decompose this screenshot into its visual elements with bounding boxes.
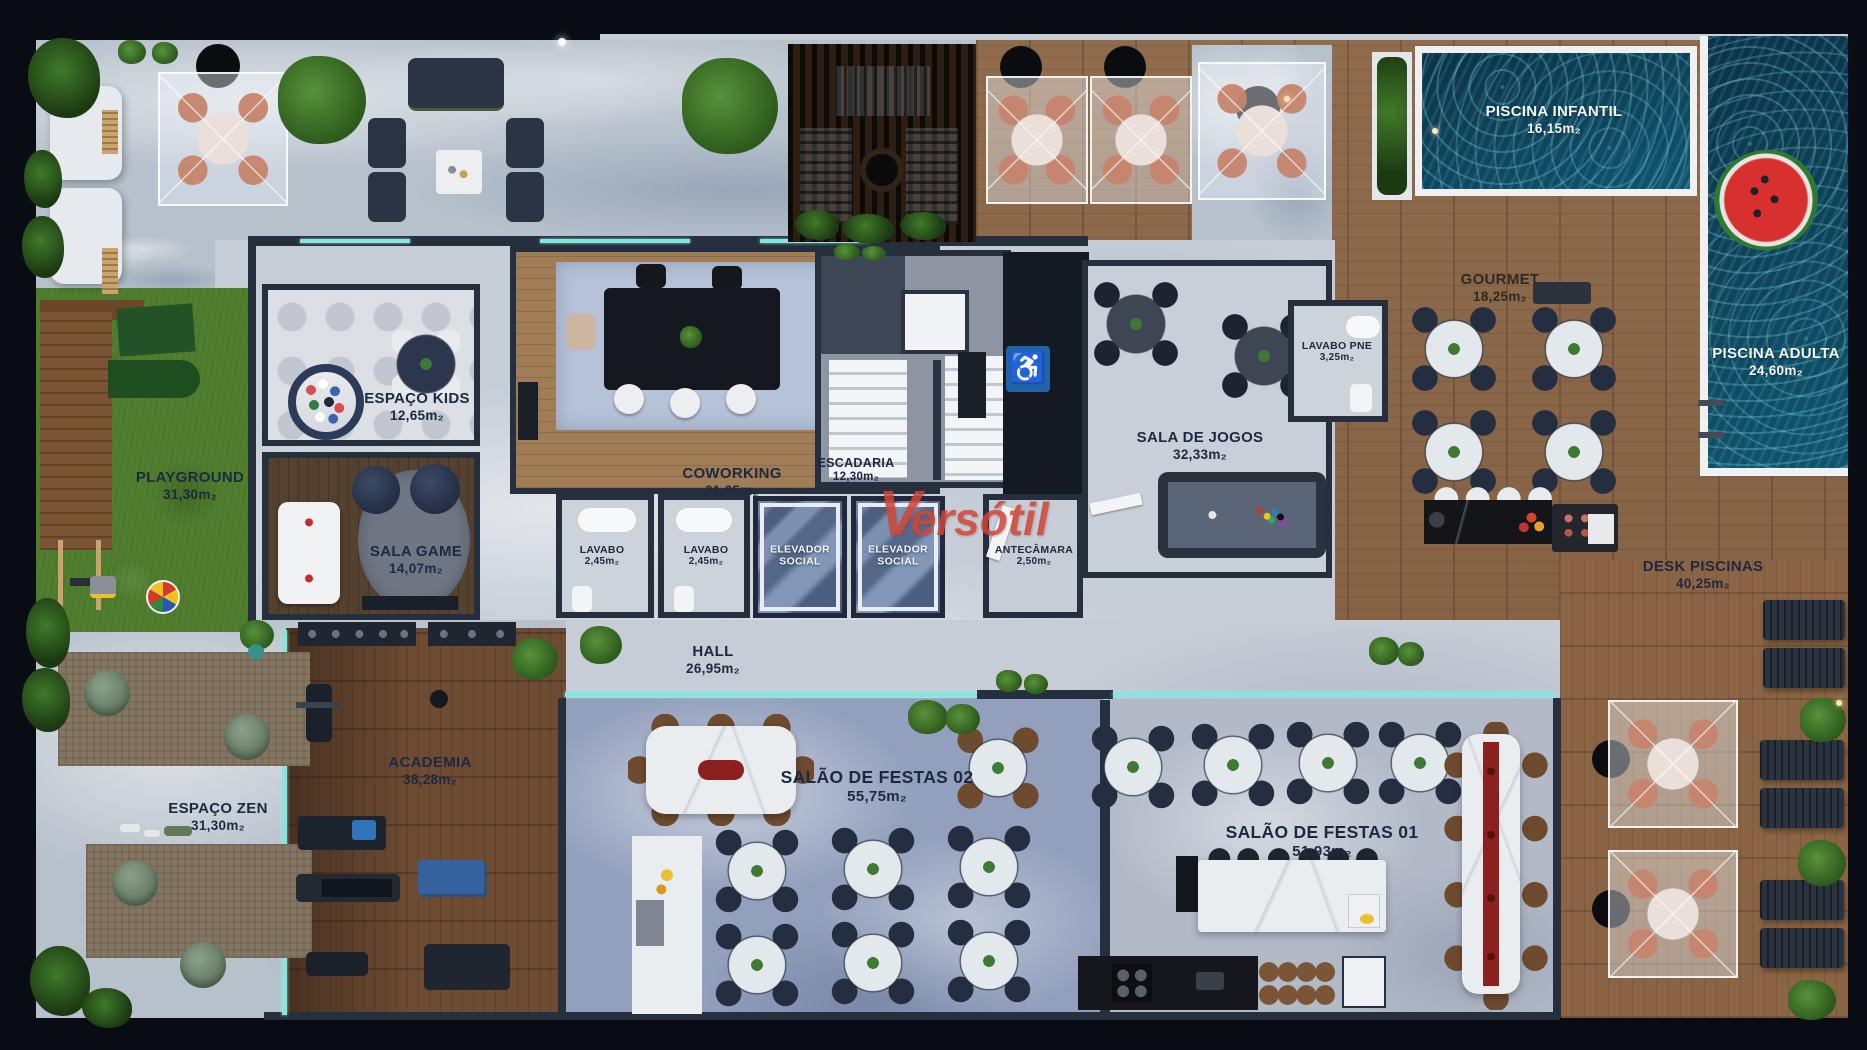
tray	[1588, 514, 1614, 544]
ball-pit	[288, 364, 364, 440]
gourmet-counter	[1424, 500, 1552, 544]
armchair	[506, 118, 544, 168]
plant	[834, 244, 860, 260]
sun-lounger	[1760, 740, 1844, 780]
plant	[118, 40, 146, 64]
label-coworking: COWORKING21,95m₂	[682, 465, 781, 499]
treadmill-belt	[322, 879, 392, 897]
office-chair	[636, 264, 666, 288]
label-desk-piscinas: DESK PISCINAS40,25m₂	[1643, 558, 1764, 592]
sun-lounger	[1760, 788, 1844, 828]
plant	[512, 638, 558, 680]
round-table	[830, 920, 916, 1006]
zen-pouf	[180, 942, 226, 988]
plant	[24, 150, 62, 208]
billiard-felt	[1168, 482, 1316, 548]
game-table	[1092, 280, 1180, 368]
plant	[1369, 637, 1399, 665]
label-lavabo-1: LAVABO2,45m₂	[580, 544, 625, 568]
zen-pouf	[84, 670, 130, 716]
plant	[1788, 980, 1836, 1020]
pergola-lounge	[158, 72, 288, 206]
planter-box	[1372, 52, 1412, 200]
fridge	[1342, 956, 1386, 1008]
plant	[1798, 840, 1846, 886]
office-chair	[726, 384, 756, 414]
dumbbell-rack	[428, 622, 516, 646]
pergola-bench	[800, 128, 852, 224]
beach-ball	[146, 580, 180, 614]
umbrella-dining-set	[1090, 76, 1192, 204]
plant	[22, 216, 64, 278]
pouf	[352, 466, 400, 514]
swing-seat	[70, 578, 92, 586]
serving-table	[1533, 282, 1591, 304]
credenza	[518, 382, 538, 440]
gym-bench	[306, 952, 368, 976]
sink	[1346, 316, 1380, 338]
office-chair	[712, 266, 742, 290]
label-espaco-zen: ESPAÇO ZEN31,30m₂	[168, 800, 267, 834]
table-runner	[1483, 742, 1499, 986]
office-chair	[670, 388, 700, 418]
slide	[108, 360, 200, 398]
sun-lounger	[1763, 600, 1845, 640]
office-chair	[614, 384, 644, 414]
plant	[26, 598, 70, 668]
bar-counter	[1198, 860, 1386, 932]
pool-ladder	[1698, 400, 1724, 406]
label-sala-de-jogos: SALA DE JOGOS32,33m₂	[1137, 429, 1264, 463]
toilet	[1350, 384, 1372, 412]
toy	[90, 576, 116, 598]
round-table	[1285, 720, 1371, 806]
armchair	[368, 172, 406, 222]
label-lavabo-2: LAVABO2,45m₂	[684, 544, 729, 568]
billiard-table	[1158, 472, 1326, 558]
salao-divider-lintel	[977, 690, 1113, 699]
plant	[908, 700, 948, 734]
floor-plan: ♿	[0, 0, 1867, 1050]
pergola-bench	[906, 128, 958, 224]
stove	[1112, 964, 1152, 1002]
outdoor-sofa	[408, 58, 504, 111]
gym-machine	[424, 944, 510, 990]
sun-lounger	[1763, 648, 1845, 688]
accessibility-icon: ♿	[1006, 346, 1050, 392]
watermark-logo: Versótil	[878, 476, 1049, 550]
label-espaco-kids: ESPAÇO KIDS12,65m₂	[364, 390, 470, 424]
sink	[676, 508, 732, 532]
palm-tree	[278, 56, 366, 144]
sink	[1196, 972, 1224, 990]
watermark-text: ersótil	[911, 493, 1049, 545]
stair-landing	[901, 290, 969, 354]
plant	[152, 42, 178, 64]
side-table	[102, 248, 118, 294]
deck-light	[1284, 96, 1290, 102]
label-playground: PLAYGROUND31,30m₂	[136, 469, 244, 503]
treadmill	[296, 874, 400, 902]
sun-lounger	[1760, 880, 1844, 920]
hedge	[1377, 57, 1407, 195]
stair-rail	[933, 360, 941, 480]
pouf	[410, 464, 460, 514]
round-table	[714, 828, 800, 914]
deck-light	[558, 38, 566, 46]
barbell	[296, 702, 342, 708]
palm-tree	[30, 946, 90, 1016]
plant	[862, 246, 886, 260]
label-lavabo-pne: LAVABO PNE3,25m₂	[1302, 340, 1372, 364]
plant	[22, 668, 70, 732]
plant	[842, 214, 894, 244]
round-table	[946, 824, 1032, 910]
label-academia: ACADEMIA38,28m₂	[388, 754, 471, 788]
cabana-dining-set	[1608, 850, 1738, 978]
round-table	[946, 918, 1032, 1004]
deck-light	[1836, 700, 1842, 706]
stair-core	[821, 256, 905, 354]
gourmet-table	[1410, 305, 1498, 393]
round-table	[1190, 722, 1276, 808]
kitchen-counter	[1078, 956, 1258, 1010]
armchair	[368, 118, 406, 168]
adult-pool	[1700, 36, 1848, 476]
north-glass	[540, 239, 690, 243]
round-table	[830, 826, 916, 912]
gym-bench	[306, 684, 332, 742]
plant	[82, 988, 132, 1028]
plant-pot	[248, 644, 264, 660]
dumbbell-rack	[298, 622, 416, 646]
sun-lounger	[1760, 928, 1844, 968]
salao01-east-wall	[1553, 698, 1561, 1018]
salao02-glass	[565, 692, 977, 697]
pool-ladder	[1698, 432, 1724, 438]
label-salao-festas-01: SALÃO DE FESTAS 0151,93m₂	[1226, 822, 1419, 860]
fruit-bowl	[1360, 914, 1374, 924]
gourmet-table	[1410, 408, 1498, 496]
plant	[1024, 674, 1048, 694]
swing-pole	[58, 540, 63, 610]
pergola-dining-set	[1198, 62, 1326, 200]
plant	[996, 670, 1022, 692]
long-dining-table	[1462, 734, 1520, 994]
playset-platform	[40, 312, 112, 550]
toilet	[674, 586, 694, 612]
salao02-west-wall	[558, 698, 566, 1018]
tv-console	[362, 596, 458, 610]
label-elevador-1: ELEVADOR SOCIAL	[764, 544, 836, 569]
stacked-chairs	[1258, 958, 1336, 1008]
palm-tree	[682, 58, 778, 154]
west-wall	[248, 240, 256, 632]
label-salao-festas-02: SALÃO DE FESTAS 0255,75m₂	[781, 767, 974, 805]
gym-mats	[418, 860, 484, 894]
label-piscina-infantil: PISCINA INFANTIL16,15m₂	[1486, 103, 1623, 137]
lounge-chair	[566, 314, 596, 350]
plant	[1398, 642, 1424, 666]
label-sala-game: SALA GAME14,07m₂	[370, 543, 462, 577]
sink	[578, 508, 636, 532]
umbrella-dining-set	[986, 76, 1088, 204]
deck-light	[1432, 128, 1438, 134]
fire-pit	[860, 148, 904, 192]
round-table	[714, 922, 800, 1008]
swing-pole	[96, 540, 101, 610]
plant	[900, 212, 946, 240]
label-hall: HALL26,95m₂	[686, 643, 740, 677]
hall-console	[958, 352, 986, 418]
air-hockey-table	[278, 502, 340, 604]
plant	[946, 704, 980, 734]
cabana-dining-set	[1608, 700, 1738, 828]
palm-tree	[28, 38, 100, 118]
gourmet-table	[1530, 408, 1618, 496]
zen-pouf	[224, 714, 270, 760]
round-table	[1090, 724, 1176, 810]
bar-cabinet	[1176, 856, 1198, 912]
salao01-glass	[1113, 692, 1555, 697]
adult-pool-water	[1708, 36, 1848, 468]
north-glass	[300, 239, 410, 243]
buffet-base	[636, 900, 664, 946]
long-dining-table	[646, 726, 796, 814]
kettlebell	[430, 690, 448, 708]
table-plant	[680, 326, 702, 348]
pergola-bench	[834, 66, 930, 116]
zen-pouf	[112, 860, 158, 906]
armchair	[506, 172, 544, 222]
plant	[795, 210, 839, 240]
label-piscina-adulta: PISCINA ADULTA24,60m₂	[1712, 345, 1840, 379]
side-table	[102, 110, 118, 154]
playset-canopy	[116, 303, 195, 356]
coffee-table	[436, 150, 482, 194]
gourmet-table	[1530, 305, 1618, 393]
food-platter	[698, 760, 744, 780]
kids-table	[392, 330, 460, 398]
plant	[580, 626, 622, 664]
dumbbell	[120, 824, 140, 832]
south-wall	[264, 1012, 1560, 1020]
toilet	[572, 586, 592, 612]
gym-pad	[352, 820, 376, 840]
dumbbell	[144, 830, 160, 837]
label-gourmet: GOURMET18,25m₂	[1461, 271, 1540, 305]
